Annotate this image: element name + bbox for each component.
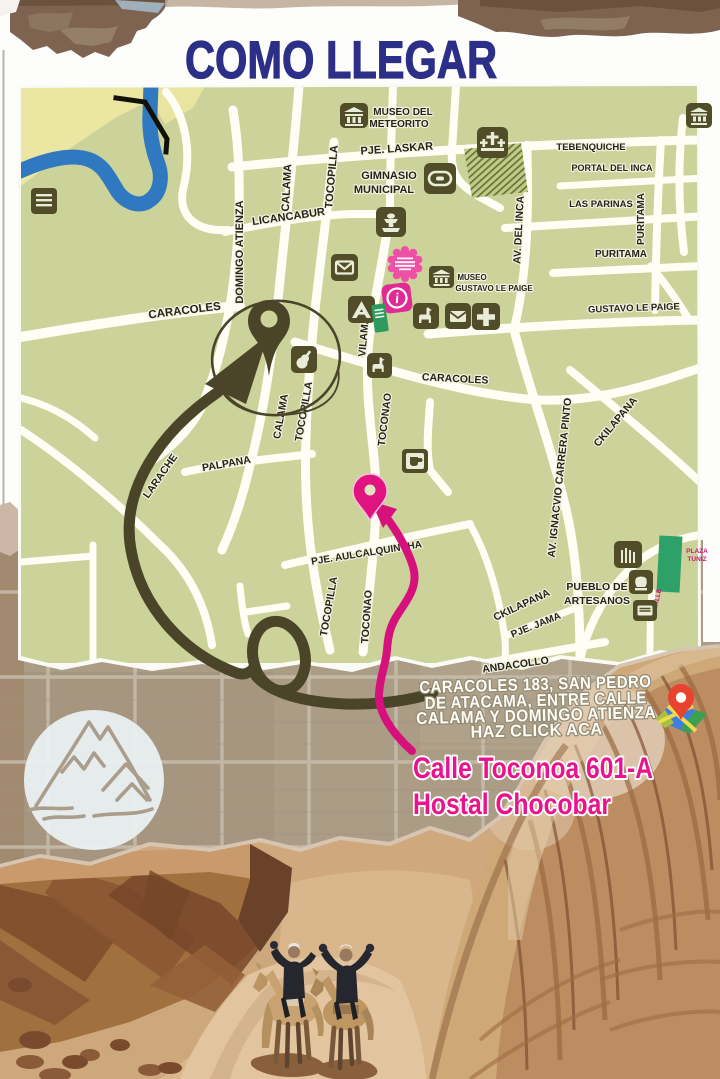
svg-text:MUNICIPAL: MUNICIPAL — [354, 184, 415, 196]
svg-text:TUNIZ: TUNIZ — [687, 556, 706, 563]
svg-text:DOMINGO ATIENZA: DOMINGO ATIENZA — [234, 200, 246, 303]
svg-text:Calle Toconoa 601-A: Calle Toconoa 601-A — [413, 752, 653, 785]
svg-text:MUSEO: MUSEO — [457, 273, 486, 282]
svg-text:HAZ CLICK ACA: HAZ CLICK ACA — [470, 719, 602, 741]
svg-text:ARTESANOS: ARTESANOS — [564, 595, 630, 607]
svg-text:TEBENQUICHE: TEBENQUICHE — [556, 142, 625, 153]
svg-text:PUEBLO DE: PUEBLO DE — [566, 581, 627, 593]
svg-text:GUSTAVO LE PAIGE: GUSTAVO LE PAIGE — [455, 284, 533, 293]
svg-text:PLAZA: PLAZA — [686, 548, 708, 555]
svg-text:PURITAMA: PURITAMA — [636, 193, 647, 245]
svg-text:COMO LLEGAR: COMO LLEGAR — [185, 31, 497, 90]
svg-text:PORTAL DEL INCA: PORTAL DEL INCA — [571, 163, 653, 173]
svg-text:METEORITO: METEORITO — [369, 119, 428, 130]
svg-text:PURITAMA: PURITAMA — [595, 249, 647, 260]
svg-text:MUSEO DEL: MUSEO DEL — [373, 107, 432, 118]
svg-text:Hostal Chocobar: Hostal Chocobar — [413, 788, 611, 821]
svg-text:LAS PARINAS: LAS PARINAS — [569, 199, 633, 210]
svg-text:GIMNASIO: GIMNASIO — [361, 170, 417, 182]
svg-text:CALAMA: CALAMA — [280, 164, 294, 212]
